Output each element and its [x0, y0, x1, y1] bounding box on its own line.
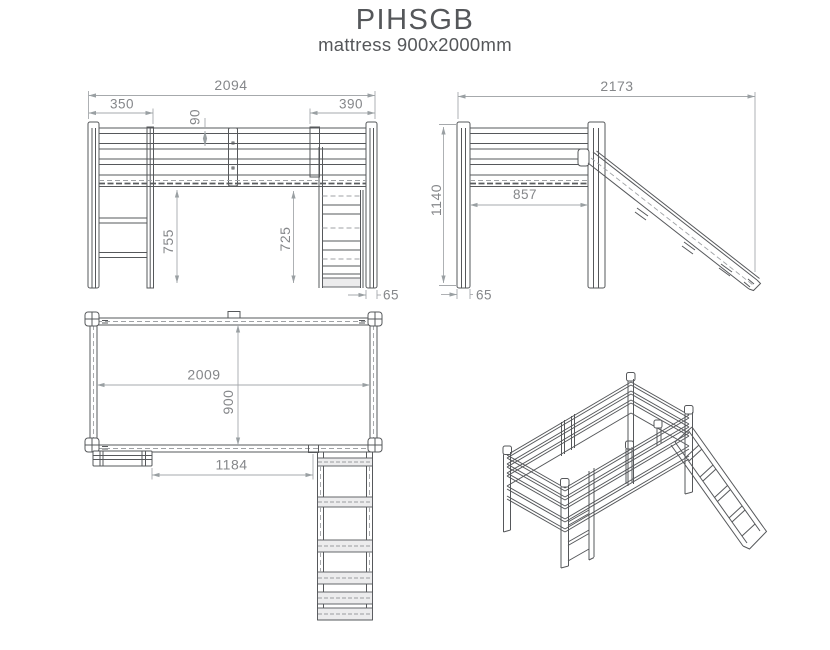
iso-platform	[507, 413, 689, 532]
top-corner-posts	[85, 312, 382, 452]
isometric-view	[503, 373, 767, 569]
dim-top-inner-length: 2009	[187, 367, 220, 383]
dim-side-overall-depth: 2173	[600, 78, 633, 94]
front-slide	[319, 147, 363, 288]
drawing-views: 2094 350 390 90 755 725 65	[0, 0, 830, 650]
side-guard-rails	[470, 128, 588, 165]
dim-front-post-width: 65	[383, 288, 399, 303]
top-view: 2009 900 1184	[85, 312, 382, 621]
side-bed-structure	[457, 122, 761, 291]
front-guard-rails	[99, 128, 366, 165]
top-slide-plan	[309, 445, 373, 620]
dim-front-clearance-right: 725	[277, 227, 293, 252]
iso-guard-rails	[507, 382, 689, 509]
front-view: 2094 350 390 90 755 725 65	[88, 77, 399, 303]
side-dimensions: 2173 1140 857 65	[428, 78, 755, 303]
front-bed-structure	[88, 122, 377, 288]
dim-side-overall-height: 1140	[428, 184, 444, 216]
dim-front-rail-spacing: 90	[188, 109, 203, 125]
top-bed-frame	[90, 312, 377, 453]
front-ladder	[99, 218, 147, 258]
top-ladder-plan	[93, 451, 152, 466]
dim-front-overall-length: 2094	[214, 77, 247, 93]
side-slide	[588, 151, 761, 291]
dim-top-ladder-to-slide: 1184	[215, 457, 247, 473]
dim-top-inner-width: 900	[220, 390, 236, 415]
front-dimensions: 2094 350 390 90 755 725 65	[89, 77, 400, 303]
dim-side-post-width: 65	[476, 288, 492, 303]
dim-side-inner-width: 857	[513, 187, 537, 202]
dim-front-slide-section: 390	[339, 97, 363, 112]
side-view: 2173 1140 857 65	[428, 78, 761, 303]
dim-front-clearance-left: 755	[160, 229, 176, 254]
dim-front-ladder-section: 350	[110, 97, 134, 112]
iso-slide	[654, 420, 767, 549]
technical-drawing-sheet: PIHSGB mattress 900x2000mm	[0, 0, 830, 650]
